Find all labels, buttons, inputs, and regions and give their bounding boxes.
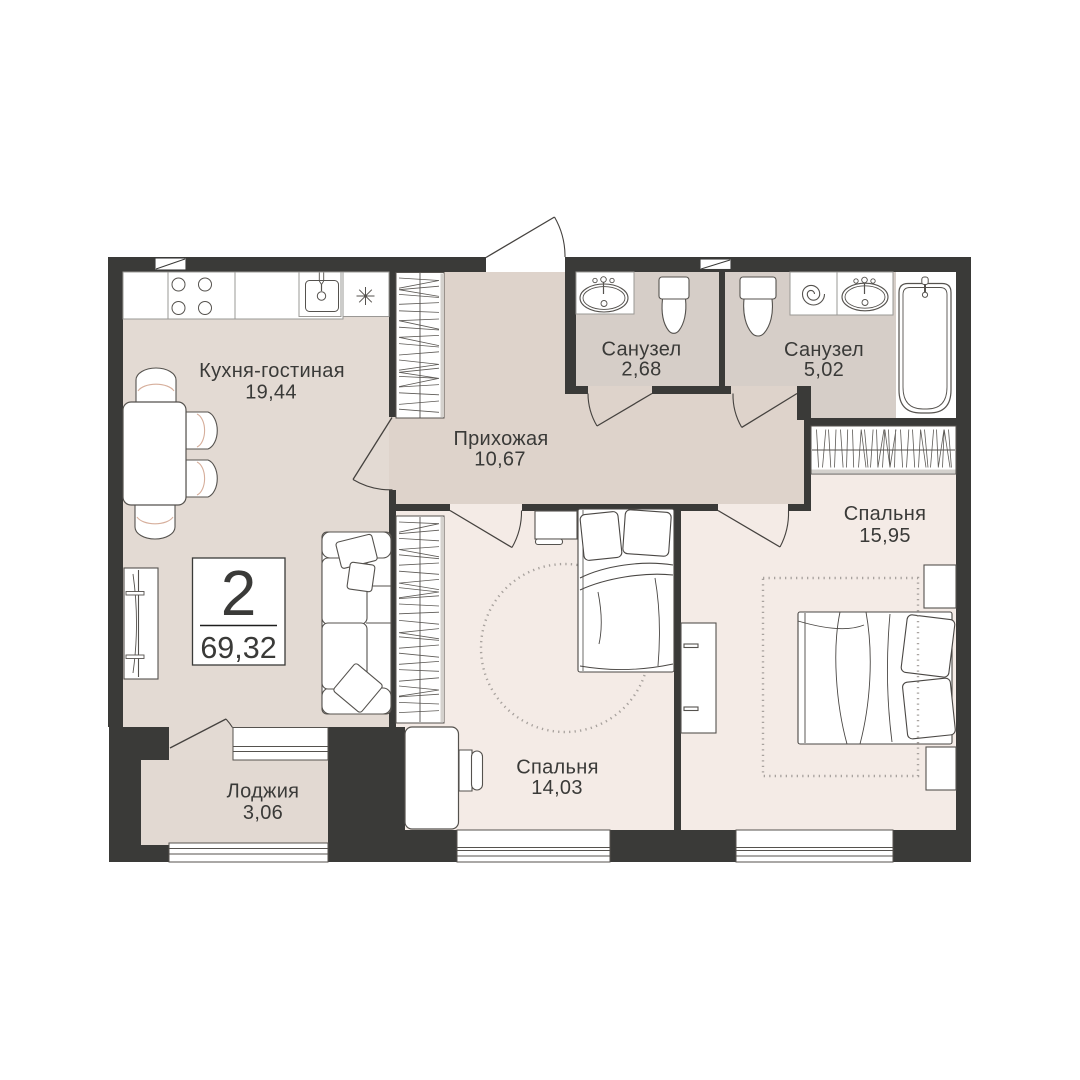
svg-text:69,32: 69,32 <box>200 631 276 665</box>
svg-text:5,02: 5,02 <box>804 359 844 381</box>
svg-text:15,95: 15,95 <box>859 525 911 547</box>
svg-text:Спальня: Спальня <box>516 757 598 779</box>
svg-text:10,67: 10,67 <box>474 449 526 471</box>
svg-text:Прихожая: Прихожая <box>453 428 548 450</box>
svg-text:14,03: 14,03 <box>531 777 583 799</box>
svg-text:3,06: 3,06 <box>243 802 283 824</box>
svg-text:Санузел: Санузел <box>601 339 681 361</box>
svg-text:19,44: 19,44 <box>245 382 297 404</box>
svg-text:2,68: 2,68 <box>621 359 661 381</box>
svg-text:Лоджия: Лоджия <box>227 781 300 803</box>
svg-text:Спальня: Спальня <box>844 503 926 525</box>
svg-text:2: 2 <box>221 557 257 629</box>
svg-text:Санузел: Санузел <box>784 339 864 361</box>
svg-text:Кухня-гостиная: Кухня-гостиная <box>199 360 345 382</box>
